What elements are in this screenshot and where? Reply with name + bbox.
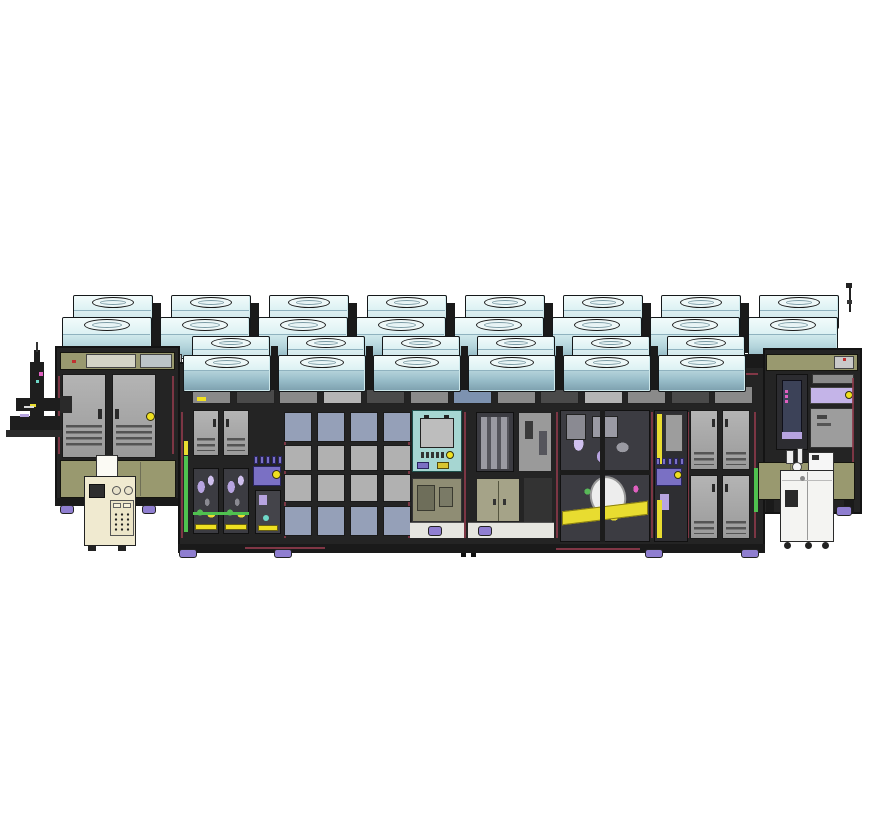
ffu-top-face: [651, 318, 738, 335]
interior-mark: [525, 421, 533, 439]
frame-accent: [556, 412, 558, 538]
glazing-pane: [350, 445, 378, 471]
fan-ring: [386, 297, 428, 308]
window-lavender-part: [259, 495, 267, 505]
interior-window: [476, 412, 514, 472]
glazing-pane: [284, 474, 312, 502]
ffu-top-face: [455, 318, 542, 335]
mullion: [600, 410, 605, 542]
glazing-pane: [317, 445, 345, 471]
fan-ring: [288, 297, 330, 308]
fan-ring: [401, 338, 441, 348]
olive-door-handle: [493, 499, 496, 505]
service-door: [690, 410, 718, 470]
ffu-top-face: [659, 356, 744, 371]
cart-caster: [805, 542, 812, 549]
ffu-front-face: [184, 371, 269, 390]
console-chip-yellow: [437, 462, 449, 469]
ffu-front-face: [374, 371, 459, 390]
equipment-line-render: [0, 0, 879, 834]
ffu-top-face: [74, 296, 151, 311]
indicator-chip: [674, 458, 678, 465]
fan-ring: [306, 338, 346, 348]
led-magenta: [785, 400, 788, 403]
foot-pad: [471, 553, 476, 557]
glazing-pane: [350, 412, 378, 442]
cart-caster: [822, 542, 829, 549]
fan-ring: [770, 319, 816, 331]
cart-foot: [118, 546, 126, 551]
fan-ring: [84, 319, 130, 331]
frame-accent: [58, 376, 60, 454]
conveyor-rail: [193, 512, 249, 515]
glazing-pane: [317, 474, 345, 502]
indicator-chip: [254, 456, 258, 464]
cart-cylinder: [786, 450, 794, 464]
ffu-front-face: [659, 371, 744, 390]
section-a-door: [193, 410, 219, 456]
indicator-chip: [278, 456, 282, 464]
glazing-pane: [383, 474, 411, 502]
right-leg: [766, 500, 774, 512]
foot-pad: [461, 553, 466, 557]
glazing-pane: [284, 445, 312, 471]
fan-ring: [190, 297, 232, 308]
fan-ring: [490, 357, 534, 368]
interior-mark: [539, 431, 547, 455]
console-mark: [426, 452, 429, 458]
ffu-connector: [461, 346, 468, 390]
robot-arm-end: [60, 396, 72, 413]
base-accent: [556, 548, 640, 550]
keypad-button: [113, 503, 121, 508]
fan-ring: [211, 338, 251, 348]
glazing-pane: [383, 412, 411, 442]
conveyor-tray: [195, 524, 217, 530]
ffu-top-face: [553, 318, 640, 335]
olive-doors: [476, 478, 520, 522]
header-window-item: [197, 397, 206, 401]
led-magenta: [785, 395, 788, 398]
left-header-panel: [140, 354, 172, 368]
glazing-pane: [284, 506, 312, 536]
leveling-foot: [274, 549, 292, 558]
frame-accent: [181, 412, 183, 538]
cart-window: [89, 484, 105, 498]
robot-label-strip: [24, 406, 34, 408]
emo-button: [146, 412, 155, 421]
fan-ring: [591, 338, 631, 348]
window-teal-lamp: [263, 515, 269, 521]
rack-columns: [481, 417, 509, 469]
ffu-unit: [373, 355, 461, 392]
process-window: [255, 490, 281, 534]
cart-dot: [800, 476, 805, 481]
robot-foot: [6, 430, 62, 437]
ffu-unit: [183, 355, 271, 392]
ffu-top-face: [161, 318, 248, 335]
led-magenta: [785, 390, 788, 393]
status-lamp-red: [72, 360, 76, 363]
ffu-top-face: [749, 318, 836, 335]
frame-accent: [464, 412, 466, 538]
fan-ring: [476, 319, 522, 331]
ffu-unit: [658, 355, 746, 392]
panel-mark: [817, 423, 831, 426]
fan-ring: [205, 357, 249, 368]
indicator-chip: [668, 458, 672, 465]
fan-ring: [300, 357, 344, 368]
cart-knob: [124, 486, 133, 495]
cart-knob: [112, 486, 121, 495]
ffu-top-face: [374, 356, 459, 371]
edge-lamp-green: [184, 456, 188, 532]
keypad-button: [123, 503, 131, 508]
fan-ring: [484, 297, 526, 308]
fan-ring: [680, 357, 724, 368]
conveyor-tray: [225, 524, 247, 530]
band-seam: [140, 462, 141, 496]
ffu-top-face: [172, 296, 249, 311]
ffu-connector: [271, 346, 278, 390]
robot-lavender-part: [20, 414, 29, 417]
fan-ring: [574, 319, 620, 331]
machine-block: [592, 416, 618, 438]
interior-dark: [524, 478, 552, 522]
indicator-chip: [680, 458, 684, 465]
mullion: [560, 470, 650, 475]
left-header-panel: [86, 354, 136, 368]
server-base: [782, 432, 802, 439]
keypad-dot-grid: [113, 512, 131, 532]
console-chip-purple: [417, 462, 429, 469]
service-door: [722, 475, 750, 539]
window-tray: [258, 525, 278, 531]
bay-caster: [478, 526, 492, 536]
cart-caster: [784, 542, 791, 549]
ffu-connector: [651, 346, 658, 390]
indicator-chip: [656, 458, 660, 465]
ffu-top-face: [357, 318, 444, 335]
ffu-top-face: [662, 296, 739, 311]
console-mark: [431, 452, 434, 458]
fan-ring: [680, 297, 722, 308]
glazing-pane: [350, 506, 378, 536]
ffu-top-face: [279, 356, 364, 371]
console-bay-interior: [412, 478, 462, 522]
service-door-grid: [690, 410, 750, 540]
signal-mast-cap: [846, 283, 852, 288]
ffu-top-face: [668, 337, 743, 350]
glazing-pane: [383, 506, 411, 536]
signal-mast: [849, 286, 851, 312]
frame-accent: [651, 412, 653, 538]
glazing-pane: [284, 412, 312, 442]
frame-accent: [172, 376, 174, 454]
bay-caster: [428, 526, 442, 536]
right-top-window: [812, 374, 854, 384]
cart-seam: [782, 480, 832, 481]
console-mark: [436, 452, 439, 458]
leveling-foot: [836, 506, 852, 516]
glazing-pane: [350, 474, 378, 502]
console-mark: [421, 452, 424, 458]
edge-lamp-yellow: [184, 441, 188, 455]
left-service-door: [62, 374, 106, 458]
robot-antenna: [36, 342, 38, 352]
ffu-top-face: [383, 337, 458, 350]
fan-ring: [582, 297, 624, 308]
service-door: [690, 475, 718, 539]
tower-mark: [812, 455, 819, 460]
glazing-pane: [317, 412, 345, 442]
fan-ring: [92, 297, 134, 308]
bay-machine: [417, 485, 435, 511]
fan-ring: [686, 338, 726, 348]
ffu-top-face: [184, 356, 269, 371]
olive-door-handle: [503, 499, 506, 505]
bay-panel: [665, 414, 683, 452]
device-tab: [424, 415, 429, 419]
ffu-top-face: [478, 337, 553, 350]
glazing-grid: [284, 412, 412, 540]
fan-ring: [585, 357, 629, 368]
ffu-unit: [278, 355, 366, 392]
ffu-top-face: [564, 296, 641, 311]
ffu-connector: [556, 346, 563, 390]
cart-top-box: [96, 455, 118, 477]
cart-dark-panel: [785, 490, 798, 507]
server-unit: [782, 380, 802, 438]
ffu-top-face: [564, 356, 649, 371]
panel-lamp: [272, 470, 281, 479]
interior-window: [518, 412, 552, 472]
signal-mast-joint: [847, 300, 852, 304]
leveling-foot: [142, 505, 156, 514]
ffu-top-face: [573, 337, 648, 350]
frame-filler: [744, 354, 765, 368]
bay-lamp-strip: [657, 500, 662, 538]
ffu-top-face: [63, 318, 150, 335]
fan-ring: [778, 297, 820, 308]
panel-mark: [817, 415, 827, 419]
fan-ring: [672, 319, 718, 331]
leveling-foot: [60, 505, 74, 514]
console-device: [420, 418, 454, 448]
bay-machine: [439, 487, 453, 507]
device-tab: [444, 415, 449, 419]
led-teal: [36, 380, 39, 383]
ffu-front-face: [469, 371, 554, 390]
ffu-top-face: [469, 356, 554, 371]
ffu-connector: [366, 346, 373, 390]
console-mark: [441, 452, 444, 458]
cart-seam: [807, 472, 808, 540]
led-magenta: [39, 372, 43, 376]
cart-foot: [88, 546, 96, 551]
indicator-chip: [260, 456, 264, 464]
edge-lamp-green: [754, 468, 758, 512]
right-gray-panel: [810, 408, 854, 448]
glazing-pane: [383, 445, 411, 471]
ffu-top-face: [760, 296, 837, 311]
frame-accent: [852, 378, 854, 462]
panel-lamp: [674, 471, 682, 479]
fan-ring: [280, 319, 326, 331]
ffu-front-face: [279, 371, 364, 390]
machine-block: [566, 414, 586, 440]
leveling-foot: [741, 549, 759, 558]
bay-lamp-strip: [657, 414, 662, 464]
fan-ring: [496, 338, 536, 348]
ffu-front-face: [564, 371, 649, 390]
olive-door-seam: [498, 481, 499, 521]
robot-head: [34, 350, 40, 364]
indicator-chip: [266, 456, 270, 464]
fan-ring: [378, 319, 424, 331]
ffu-top-face: [270, 296, 347, 311]
fan-ring: [395, 357, 439, 368]
leveling-foot: [645, 549, 663, 558]
robot-mast: [30, 362, 44, 422]
service-door: [722, 410, 750, 470]
ffu-unit: [468, 355, 556, 392]
section-a-door: [223, 410, 249, 456]
indicator-chip: [662, 458, 666, 465]
glazing-pane: [317, 506, 345, 536]
console-lamp: [446, 451, 454, 459]
ffu-top-face: [259, 318, 346, 335]
ffu-unit: [563, 355, 651, 392]
ffu-top-face: [288, 337, 363, 350]
status-lamp-red: [843, 358, 846, 361]
ffu-top-face: [193, 337, 268, 350]
leveling-foot: [179, 549, 197, 558]
indicator-chip: [272, 456, 276, 464]
ffu-top-face: [368, 296, 445, 311]
ffu-top-face: [466, 296, 543, 311]
fan-ring: [182, 319, 228, 331]
